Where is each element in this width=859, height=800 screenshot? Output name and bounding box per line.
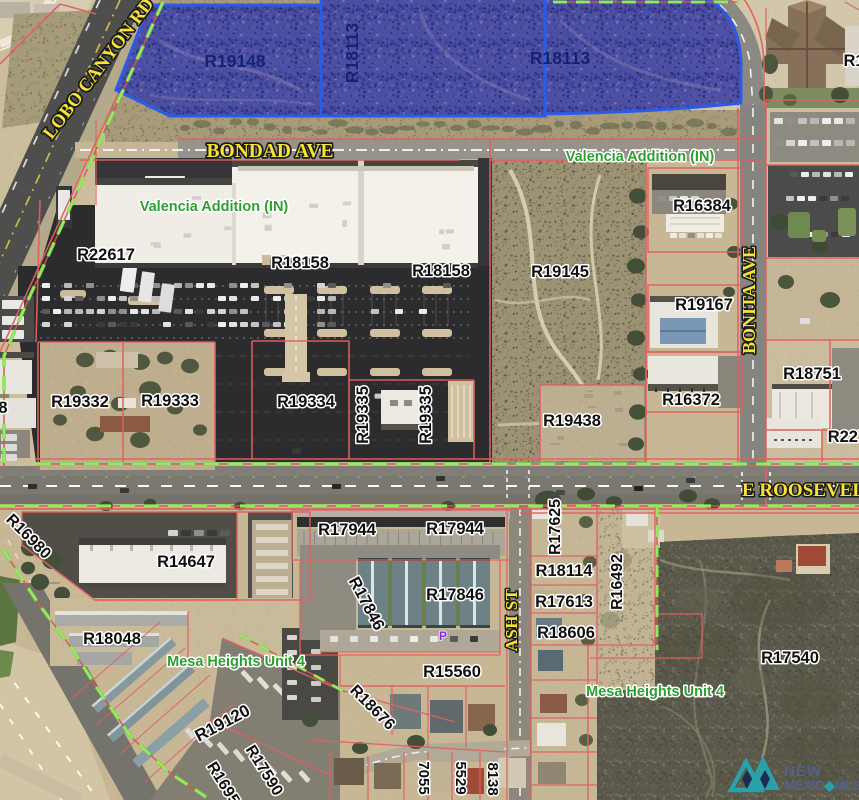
svg-text:R19333: R19333 xyxy=(141,392,199,410)
svg-text:R19334: R19334 xyxy=(277,393,336,411)
svg-text:R17613: R17613 xyxy=(535,593,593,611)
svg-text:R2274: R2274 xyxy=(828,428,859,446)
svg-text:R16492: R16492 xyxy=(609,554,626,610)
svg-text:R1: R1 xyxy=(843,52,859,70)
svg-text:Mesa Heights Unit 4: Mesa Heights Unit 4 xyxy=(586,684,724,700)
svg-text:E ROOSEVELT: E ROOSEVELT xyxy=(742,480,859,501)
svg-text:R22617: R22617 xyxy=(77,246,135,264)
svg-text:R17944: R17944 xyxy=(318,521,377,539)
svg-text:R18751: R18751 xyxy=(783,365,841,383)
svg-text:R14647: R14647 xyxy=(157,553,215,571)
svg-text:R18048: R18048 xyxy=(83,630,141,648)
svg-text:R17540: R17540 xyxy=(761,649,819,667)
svg-text:R17625: R17625 xyxy=(547,499,564,555)
svg-text:R18158: R18158 xyxy=(271,254,329,272)
svg-text:5529: 5529 xyxy=(452,761,469,794)
svg-text:R18114: R18114 xyxy=(536,562,594,580)
svg-text:R17944: R17944 xyxy=(426,520,485,538)
svg-text:R18113: R18113 xyxy=(530,48,591,68)
svg-text:R17846: R17846 xyxy=(426,586,484,604)
svg-text:R19167: R19167 xyxy=(675,296,733,314)
svg-text:ASH ST: ASH ST xyxy=(502,588,521,651)
svg-text:R16384: R16384 xyxy=(673,197,732,215)
svg-text:R18606: R18606 xyxy=(537,624,595,642)
svg-text:R19335: R19335 xyxy=(417,386,435,444)
svg-text:8: 8 xyxy=(0,399,8,417)
svg-text:BONDAD AVE: BONDAD AVE xyxy=(207,141,334,162)
svg-text:8138: 8138 xyxy=(484,762,501,795)
svg-text:R18158: R18158 xyxy=(412,262,470,280)
svg-text:BONITA AVE: BONITA AVE xyxy=(739,246,759,354)
svg-text:R19438: R19438 xyxy=(543,412,601,430)
svg-text:Valencia Addition (IN): Valencia Addition (IN) xyxy=(566,149,715,165)
svg-text:R19148: R19148 xyxy=(204,51,266,71)
svg-text:7055: 7055 xyxy=(415,761,432,794)
svg-text:R19332: R19332 xyxy=(51,393,109,411)
svg-text:R19145: R19145 xyxy=(531,263,589,281)
svg-text:P: P xyxy=(439,629,447,643)
svg-text:R15560: R15560 xyxy=(423,663,481,681)
svg-text:Valencia Addition (IN): Valencia Addition (IN) xyxy=(140,199,289,215)
svg-text:R19335: R19335 xyxy=(354,386,372,444)
svg-text:R16372: R16372 xyxy=(662,391,720,409)
svg-text:MEXIC◆MLS: MEXIC◆MLS xyxy=(784,778,859,793)
svg-text:Mesa Heights Unit 4: Mesa Heights Unit 4 xyxy=(167,654,305,670)
svg-text:R18113: R18113 xyxy=(342,23,362,84)
